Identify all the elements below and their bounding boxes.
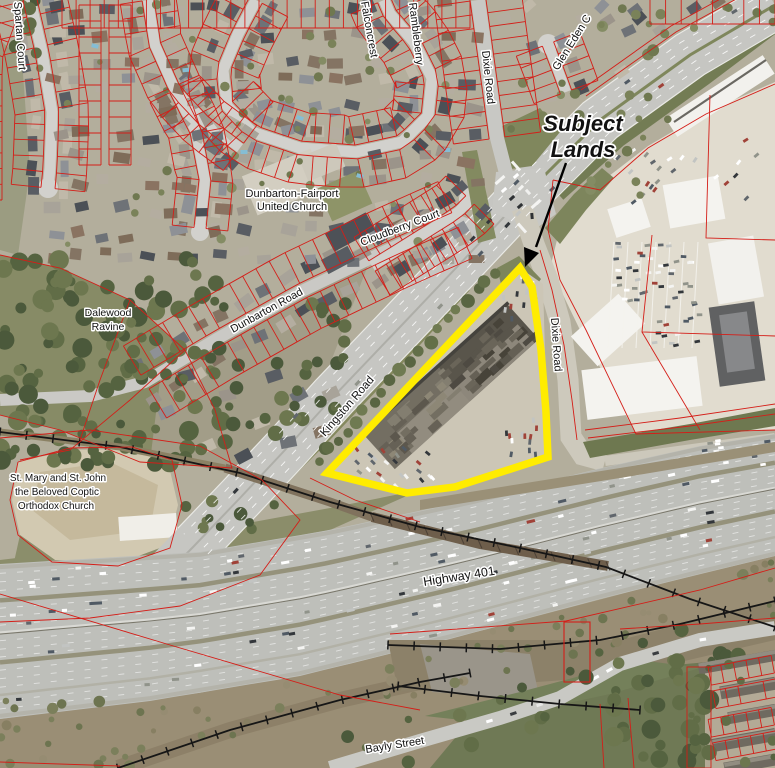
svg-text:Dunbarton-Fairport: Dunbarton-Fairport [246, 188, 339, 200]
svg-text:Ravine: Ravine [92, 321, 125, 333]
svg-text:Orthodox Church: Orthodox Church [18, 501, 94, 512]
svg-text:St. Mary and St. John: St. Mary and St. John [10, 473, 106, 484]
svg-text:United Church: United Church [257, 201, 327, 213]
svg-text:Lands: Lands [551, 137, 616, 162]
svg-text:Subject: Subject [543, 111, 624, 136]
svg-text:the Beloved Coptic: the Beloved Coptic [15, 487, 99, 498]
svg-text:Dalewood: Dalewood [85, 307, 132, 319]
